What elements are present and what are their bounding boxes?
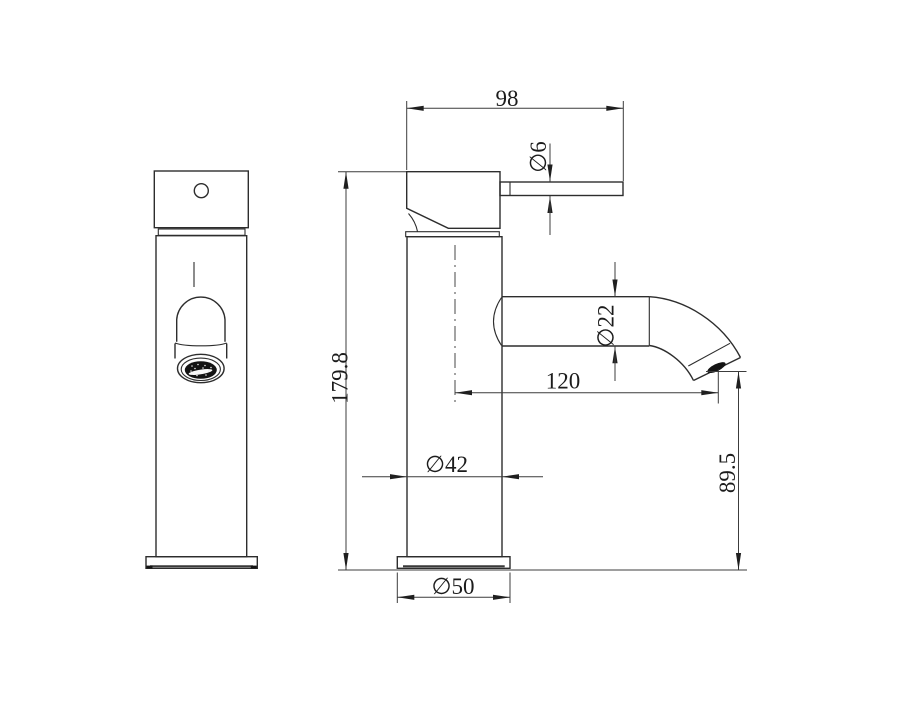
dim-spout-diameter-22: ∅22 — [594, 262, 619, 381]
arrowhead-down — [612, 280, 617, 297]
spout-outer-curve — [649, 297, 740, 358]
drawing-canvas: 98 ∅6 179.8 ∅22 120 89.5 — [0, 0, 920, 720]
side-lever-rod — [500, 182, 623, 196]
arrowhead-up — [343, 172, 348, 189]
arrowhead-left — [407, 106, 424, 111]
arrowhead-down — [736, 553, 741, 570]
dim-label-d42: ∅42 — [425, 452, 468, 477]
spout-outlet-dark — [706, 360, 727, 375]
front-spout-capsule — [177, 297, 225, 342]
dim-label-d22: ∅22 — [594, 304, 619, 347]
front-view — [146, 171, 257, 569]
arrowhead-right — [701, 390, 718, 395]
arrowhead-left — [455, 390, 472, 395]
dim-label-120: 120 — [546, 369, 581, 394]
dim-overall-height-179-8: 179.8 — [328, 172, 407, 570]
front-spout-junction — [175, 343, 227, 346]
side-head-arc-detail — [409, 214, 418, 232]
dim-label-89-5: 89.5 — [715, 453, 740, 493]
dim-label-98: 98 — [496, 86, 519, 111]
side-view — [338, 172, 747, 570]
dim-base-diameter-50: ∅50 — [397, 573, 510, 604]
spout-body-intersection — [494, 298, 502, 346]
dim-spout-reach-120: 120 — [455, 369, 718, 404]
spout-inner-curve — [649, 346, 693, 381]
front-body — [156, 236, 247, 557]
technical-drawing: 98 ∅6 179.8 ∅22 120 89.5 — [0, 0, 920, 720]
front-base-foot-left — [147, 566, 153, 569]
front-base-foot-right — [251, 566, 257, 569]
dim-label-d50: ∅50 — [431, 574, 474, 599]
dim-body-diameter-42: ∅42 — [362, 452, 543, 479]
arrowhead-up — [736, 372, 741, 389]
side-handle-head — [407, 172, 500, 229]
front-collar — [158, 229, 245, 235]
arrowhead-right — [606, 106, 623, 111]
front-lever-pivot-circle — [194, 184, 208, 198]
dim-label-179-8: 179.8 — [328, 352, 353, 404]
front-handle-head — [154, 171, 248, 228]
arrowhead-left — [397, 595, 414, 600]
dim-outlet-height-89-5: 89.5 — [706, 372, 747, 571]
dim-lever-reach-98: 98 — [407, 86, 624, 181]
dim-label-d6: ∅6 — [526, 141, 551, 173]
dim-lever-diameter-6: ∅6 — [526, 141, 553, 235]
arrowhead-right — [493, 595, 510, 600]
arrowhead-right — [390, 474, 407, 479]
arrowhead-left — [502, 474, 519, 479]
front-aerator — [178, 354, 225, 382]
arrowhead-down — [343, 553, 348, 570]
side-collar — [406, 232, 500, 237]
